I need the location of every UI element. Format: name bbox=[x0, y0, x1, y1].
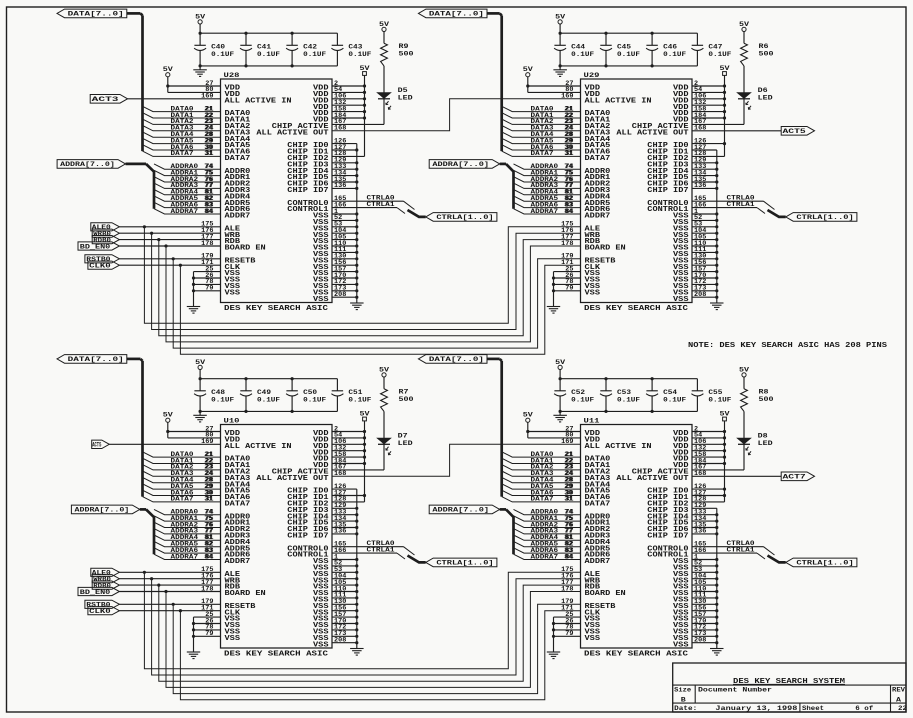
svg-text:ACT7: ACT7 bbox=[783, 474, 807, 481]
svg-text:ADDR7: ADDR7 bbox=[225, 558, 251, 566]
svg-text:ACT3: ACT3 bbox=[92, 96, 119, 103]
svg-text:NOTE: DES KEY SEARCH ASIC HAS: NOTE: DES KEY SEARCH ASIC HAS 208 PINS bbox=[688, 342, 888, 350]
svg-text:169: 169 bbox=[561, 438, 573, 445]
svg-text:5V: 5V bbox=[163, 66, 173, 73]
svg-text:VSS: VSS bbox=[673, 641, 689, 649]
svg-text:5V: 5V bbox=[360, 65, 370, 72]
svg-text:Document Number: Document Number bbox=[698, 687, 772, 694]
svg-text:500: 500 bbox=[759, 396, 774, 403]
svg-text:0.1UF: 0.1UF bbox=[303, 51, 326, 58]
svg-text:C45: C45 bbox=[617, 43, 631, 50]
svg-text:DES KEY SEARCH ASIC: DES KEY SEARCH ASIC bbox=[584, 651, 688, 659]
svg-text:CTRLA1: CTRLA1 bbox=[367, 547, 395, 554]
svg-text:R9: R9 bbox=[399, 43, 409, 50]
svg-text:VSS: VSS bbox=[673, 296, 689, 304]
svg-text:DES KEY SEARCH ASIC: DES KEY SEARCH ASIC bbox=[224, 305, 328, 313]
svg-text:CHIP ID7: CHIP ID7 bbox=[647, 187, 688, 195]
svg-text:5V: 5V bbox=[379, 21, 389, 28]
svg-text:500: 500 bbox=[399, 396, 414, 403]
svg-text:DES KEY SEARCH ASIC: DES KEY SEARCH ASIC bbox=[584, 305, 688, 313]
svg-text:5V: 5V bbox=[163, 412, 173, 419]
svg-text:C49: C49 bbox=[257, 389, 271, 396]
svg-text:C44: C44 bbox=[571, 43, 585, 50]
svg-text:ACT5: ACT5 bbox=[92, 442, 101, 449]
svg-text:DES KEY SEARCH SYSTEM: DES KEY SEARCH SYSTEM bbox=[733, 678, 845, 686]
svg-text:CHIP ID7: CHIP ID7 bbox=[287, 187, 328, 195]
svg-text:0.1UF: 0.1UF bbox=[303, 396, 326, 403]
svg-text:DATA7: DATA7 bbox=[225, 501, 251, 509]
svg-text:C42: C42 bbox=[303, 43, 317, 50]
svg-text:VSS: VSS bbox=[225, 289, 241, 297]
svg-text:ALL ACTIVE OUT: ALL ACTIVE OUT bbox=[616, 129, 688, 137]
svg-text:6 of: 6 of bbox=[855, 705, 873, 712]
svg-text:ALL ACTIVE IN: ALL ACTIVE IN bbox=[225, 443, 292, 451]
svg-text:Date:: Date: bbox=[674, 705, 697, 712]
svg-text:C40: C40 bbox=[211, 43, 225, 50]
svg-text:ADDR7: ADDR7 bbox=[585, 213, 611, 221]
svg-text:5V: 5V bbox=[523, 412, 533, 419]
svg-text:500: 500 bbox=[759, 51, 774, 58]
svg-text:ALL ACTIVE OUT: ALL ACTIVE OUT bbox=[256, 129, 328, 137]
svg-text:CLK0: CLK0 bbox=[89, 608, 111, 615]
svg-text:D5: D5 bbox=[398, 87, 408, 94]
svg-text:ACT5: ACT5 bbox=[783, 128, 807, 135]
svg-text:ALL ACTIVE OUT: ALL ACTIVE OUT bbox=[256, 475, 328, 483]
svg-text:ADDRA7: ADDRA7 bbox=[171, 553, 199, 560]
svg-text:REV: REV bbox=[892, 687, 905, 694]
svg-text:0.1UF: 0.1UF bbox=[708, 396, 731, 403]
svg-text:ADDRA[7..0]: ADDRA[7..0] bbox=[60, 161, 115, 168]
svg-text:DATA7: DATA7 bbox=[171, 150, 194, 157]
svg-text:ADDRA7: ADDRA7 bbox=[531, 208, 559, 215]
svg-text:R6: R6 bbox=[759, 43, 769, 50]
svg-text:0.1UF: 0.1UF bbox=[257, 396, 280, 403]
svg-text:DATA7: DATA7 bbox=[585, 155, 611, 163]
svg-text:C41: C41 bbox=[257, 43, 271, 50]
svg-text:BD_EN0: BD_EN0 bbox=[80, 589, 111, 596]
svg-text:0.1UF: 0.1UF bbox=[708, 51, 731, 58]
svg-text:CTRLA[1..0]: CTRLA[1..0] bbox=[796, 560, 853, 567]
svg-text:LED: LED bbox=[398, 94, 413, 101]
svg-text:0.1UF: 0.1UF bbox=[211, 51, 234, 58]
svg-text:C43: C43 bbox=[348, 43, 362, 50]
svg-text:ADDR7: ADDR7 bbox=[225, 213, 251, 221]
svg-text:ALL ACTIVE IN: ALL ACTIVE IN bbox=[585, 443, 652, 451]
svg-text:C55: C55 bbox=[708, 389, 722, 396]
svg-text:D6: D6 bbox=[758, 87, 768, 94]
svg-text:ADDRA7: ADDRA7 bbox=[171, 208, 199, 215]
svg-text:DES KEY SEARCH ASIC: DES KEY SEARCH ASIC bbox=[224, 651, 328, 659]
svg-text:84: 84 bbox=[204, 208, 212, 215]
svg-text:5V: 5V bbox=[720, 411, 730, 418]
svg-text:0.1UF: 0.1UF bbox=[571, 51, 594, 58]
svg-text:January 13, 1998: January 13, 1998 bbox=[715, 705, 797, 712]
svg-text:500: 500 bbox=[399, 51, 414, 58]
svg-text:CTRLA[1..0]: CTRLA[1..0] bbox=[436, 214, 493, 221]
svg-text:31: 31 bbox=[204, 150, 212, 157]
svg-text:U29: U29 bbox=[584, 72, 600, 79]
svg-text:0.1UF: 0.1UF bbox=[617, 396, 640, 403]
svg-text:31: 31 bbox=[564, 150, 572, 157]
svg-text:84: 84 bbox=[204, 553, 212, 560]
svg-text:5V: 5V bbox=[379, 366, 389, 373]
svg-text:C52: C52 bbox=[571, 389, 585, 396]
svg-text:VSS: VSS bbox=[585, 289, 601, 297]
svg-text:BOARD EN: BOARD EN bbox=[225, 590, 266, 598]
svg-text:0.1UF: 0.1UF bbox=[348, 396, 371, 403]
svg-text:178: 178 bbox=[561, 240, 573, 247]
svg-text:D7: D7 bbox=[398, 433, 408, 440]
svg-text:ADDRA[7..0]: ADDRA[7..0] bbox=[432, 507, 489, 514]
svg-text:ALL ACTIVE OUT: ALL ACTIVE OUT bbox=[616, 475, 688, 483]
svg-text:CHIP ID7: CHIP ID7 bbox=[287, 533, 328, 541]
svg-text:CTRLA[1..0]: CTRLA[1..0] bbox=[796, 214, 853, 221]
svg-text:U11: U11 bbox=[584, 417, 600, 424]
svg-text:U28: U28 bbox=[224, 72, 240, 79]
svg-text:B: B bbox=[681, 697, 686, 704]
svg-text:DATA7: DATA7 bbox=[225, 155, 251, 163]
svg-text:A: A bbox=[896, 697, 901, 704]
svg-text:BOARD EN: BOARD EN bbox=[225, 245, 266, 253]
svg-text:CTRLA[1..0]: CTRLA[1..0] bbox=[436, 560, 493, 567]
svg-text:5V: 5V bbox=[195, 13, 205, 20]
svg-text:C53: C53 bbox=[617, 389, 631, 396]
svg-text:0.1UF: 0.1UF bbox=[257, 51, 280, 58]
svg-text:VSS: VSS bbox=[225, 635, 241, 643]
svg-text:5V: 5V bbox=[360, 411, 370, 418]
svg-text:DATA7: DATA7 bbox=[171, 496, 194, 503]
svg-text:ADDRA7: ADDRA7 bbox=[531, 553, 559, 560]
svg-text:84: 84 bbox=[564, 553, 572, 560]
svg-text:BD_EN0: BD_EN0 bbox=[80, 243, 111, 250]
svg-text:5V: 5V bbox=[523, 66, 533, 73]
svg-text:BOARD EN: BOARD EN bbox=[585, 245, 626, 253]
svg-text:CTRLA1: CTRLA1 bbox=[727, 547, 755, 554]
svg-text:5V: 5V bbox=[195, 359, 205, 366]
svg-text:0.1UF: 0.1UF bbox=[663, 396, 686, 403]
svg-text:CLK0: CLK0 bbox=[89, 263, 111, 270]
svg-text:31: 31 bbox=[564, 496, 572, 503]
svg-text:22: 22 bbox=[898, 705, 907, 712]
svg-text:5V: 5V bbox=[739, 21, 749, 28]
svg-text:C51: C51 bbox=[348, 389, 362, 396]
svg-text:LED: LED bbox=[758, 94, 773, 101]
svg-text:Sheet: Sheet bbox=[802, 705, 824, 712]
svg-text:DATA7: DATA7 bbox=[531, 150, 554, 157]
svg-text:DATA7: DATA7 bbox=[531, 496, 554, 503]
svg-text:R8: R8 bbox=[759, 389, 769, 396]
svg-text:C47: C47 bbox=[708, 43, 722, 50]
svg-text:R7: R7 bbox=[399, 389, 409, 396]
svg-text:ALL ACTIVE IN: ALL ACTIVE IN bbox=[225, 97, 292, 105]
svg-text:C48: C48 bbox=[211, 389, 225, 396]
svg-text:CTRLA1: CTRLA1 bbox=[727, 201, 755, 208]
svg-text:0.1UF: 0.1UF bbox=[348, 51, 371, 58]
svg-text:DATA7: DATA7 bbox=[585, 501, 611, 509]
svg-text:ADDRA[7..0]: ADDRA[7..0] bbox=[75, 507, 130, 514]
svg-text:DATA[7..0]: DATA[7..0] bbox=[68, 356, 124, 363]
svg-text:LED: LED bbox=[758, 440, 773, 447]
svg-text:84: 84 bbox=[564, 208, 572, 215]
svg-text:ADDRA[7..0]: ADDRA[7..0] bbox=[432, 161, 489, 168]
svg-text:C50: C50 bbox=[303, 389, 317, 396]
svg-text:U10: U10 bbox=[224, 417, 240, 424]
svg-text:0.1UF: 0.1UF bbox=[663, 51, 686, 58]
svg-text:CHIP ID7: CHIP ID7 bbox=[647, 533, 688, 541]
svg-text:0.1UF: 0.1UF bbox=[617, 51, 640, 58]
svg-text:0.1UF: 0.1UF bbox=[211, 396, 234, 403]
svg-text:C54: C54 bbox=[663, 389, 677, 396]
svg-text:VSS: VSS bbox=[585, 635, 601, 643]
svg-text:LED: LED bbox=[398, 440, 413, 447]
svg-text:169: 169 bbox=[561, 93, 573, 100]
svg-text:CTRLA1: CTRLA1 bbox=[367, 201, 395, 208]
svg-text:DATA[7..0]: DATA[7..0] bbox=[429, 11, 484, 18]
svg-text:5V: 5V bbox=[739, 366, 749, 373]
svg-text:ALL ACTIVE IN: ALL ACTIVE IN bbox=[585, 97, 652, 105]
svg-text:5V: 5V bbox=[720, 65, 730, 72]
svg-text:0.1UF: 0.1UF bbox=[571, 396, 594, 403]
svg-text:5V: 5V bbox=[555, 13, 565, 20]
svg-text:DATA[7..0]: DATA[7..0] bbox=[68, 11, 124, 18]
svg-text:VSS: VSS bbox=[313, 296, 329, 304]
svg-text:VSS: VSS bbox=[313, 641, 329, 649]
svg-text:ADDR7: ADDR7 bbox=[585, 558, 611, 566]
svg-text:C46: C46 bbox=[663, 43, 677, 50]
svg-text:Size: Size bbox=[674, 687, 691, 694]
svg-text:178: 178 bbox=[561, 585, 573, 592]
svg-text:31: 31 bbox=[204, 496, 212, 503]
svg-text:D8: D8 bbox=[758, 433, 768, 440]
svg-text:DATA[7..0]: DATA[7..0] bbox=[429, 356, 484, 363]
svg-text:BOARD EN: BOARD EN bbox=[585, 590, 626, 598]
svg-text:5V: 5V bbox=[555, 359, 565, 366]
